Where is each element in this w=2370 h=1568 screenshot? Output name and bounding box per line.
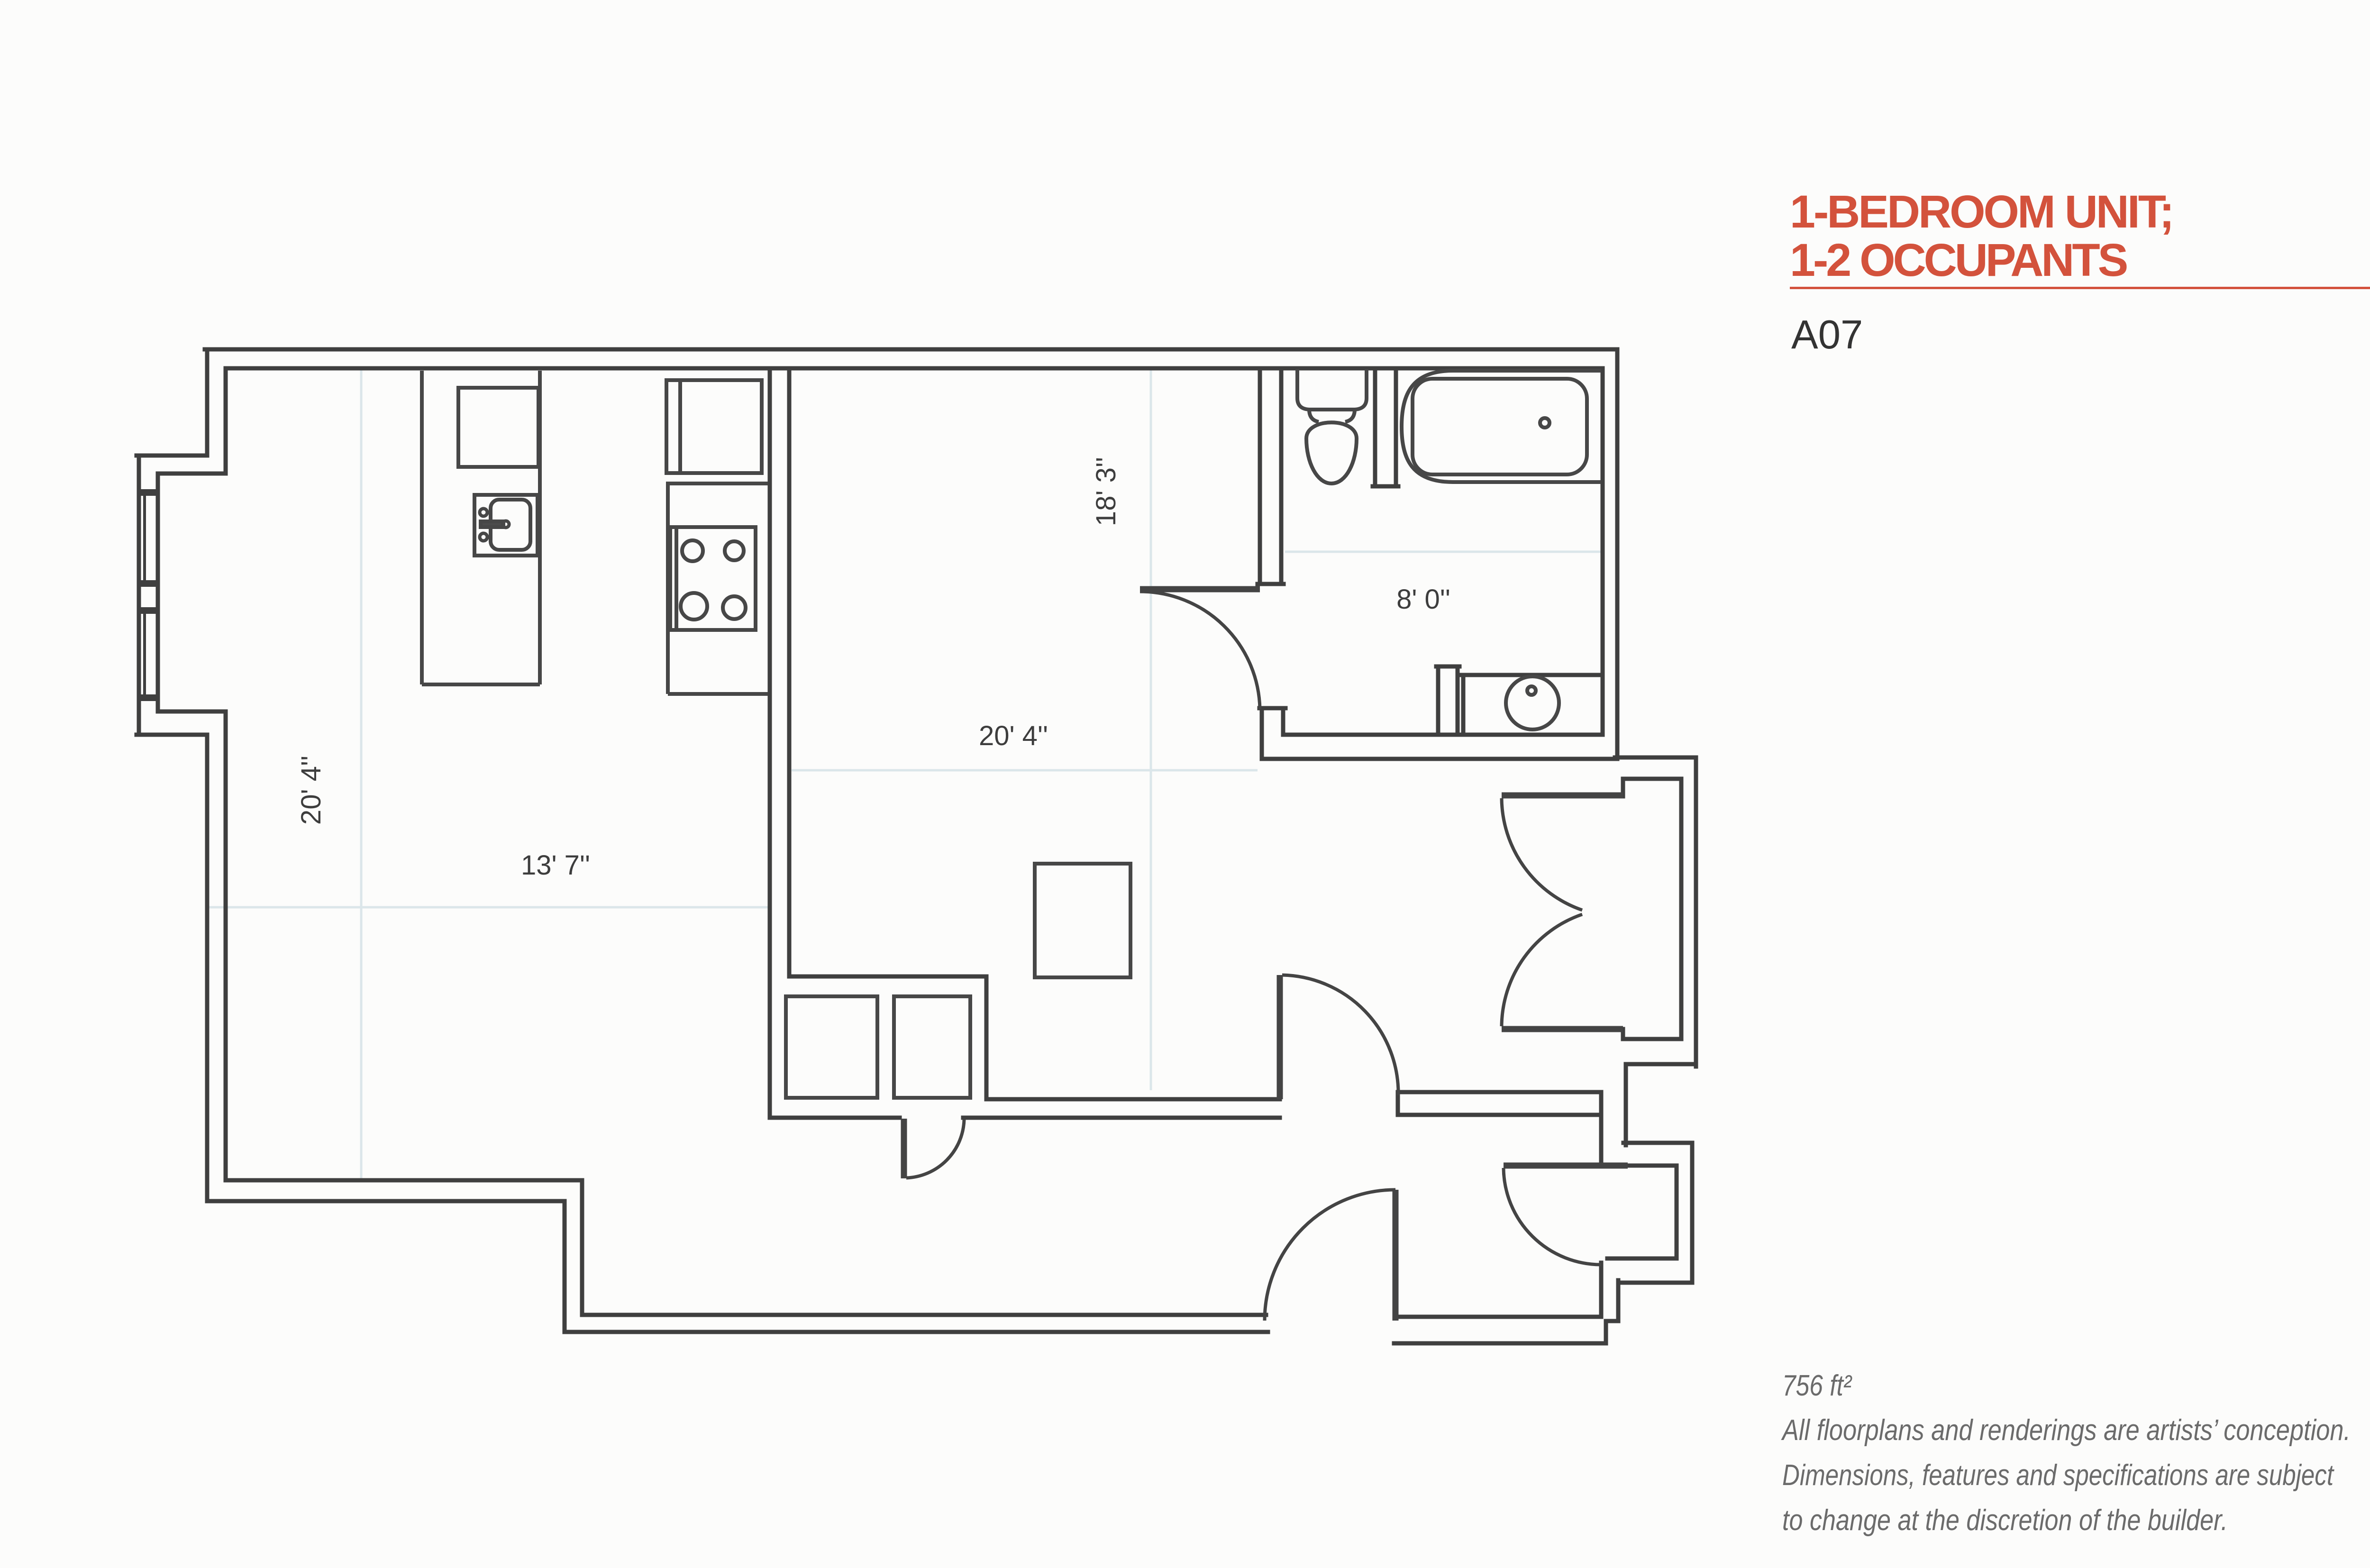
svg-text:A07: A07 <box>1791 312 1863 357</box>
svg-text:1-BEDROOM UNIT;: 1-BEDROOM UNIT; <box>1790 186 2173 237</box>
svg-text:to change at the discretion of: to change at the discretion of the build… <box>1782 1504 2228 1537</box>
svg-text:20' 4'': 20' 4'' <box>979 720 1048 751</box>
svg-text:756 ft²: 756 ft² <box>1782 1369 1852 1402</box>
svg-text:18' 3'': 18' 3'' <box>1091 457 1121 526</box>
svg-text:Dimensions, features and speci: Dimensions, features and specifications … <box>1782 1459 2334 1492</box>
svg-text:13' 7'': 13' 7'' <box>521 850 590 881</box>
svg-text:1-2 OCCUPANTS: 1-2 OCCUPANTS <box>1790 234 2127 286</box>
svg-text:8' 0'': 8' 0'' <box>1396 584 1450 615</box>
svg-text:20' 4'': 20' 4'' <box>296 756 327 825</box>
svg-text:All floorplans and renderings: All floorplans and renderings are artist… <box>1781 1414 2351 1447</box>
